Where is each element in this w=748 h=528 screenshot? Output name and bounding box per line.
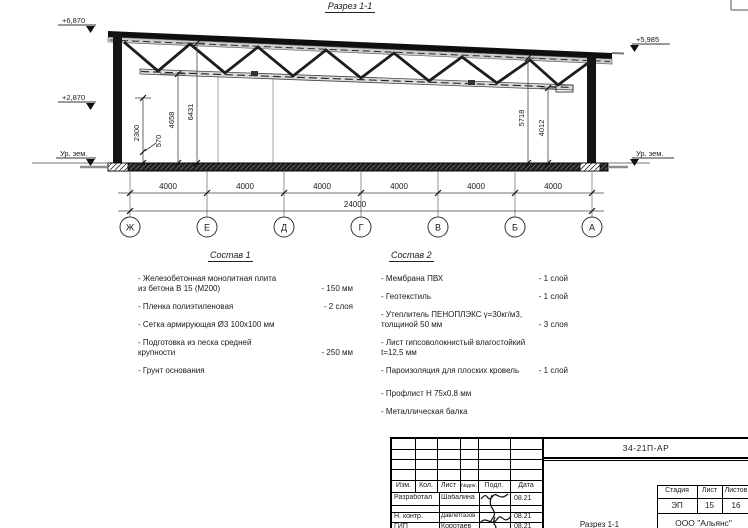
list-item: - Профлист Н 75х0.8 мм <box>381 389 568 399</box>
tb-col-izm: Изм. <box>392 482 415 489</box>
bay-dim-value: 4000 <box>236 182 254 191</box>
dim-value: 6431 <box>186 104 195 121</box>
composition-list-1: Состав 1 - Железобетонная монолитная пли… <box>138 250 353 384</box>
axis-label: Ж <box>126 223 135 233</box>
item-text: - Железобетонная монолитная плита из бет… <box>138 274 276 294</box>
axis-bubbles: Ж Е Д Г В Б А <box>120 217 602 237</box>
dimension-6431: 6431 <box>182 40 205 166</box>
column-right <box>587 56 596 165</box>
elevation-value: Ур. зем. <box>60 149 88 158</box>
list-item: - Геотекстиль- 1 слой <box>381 292 568 302</box>
bay-dim-value: 4000 <box>313 182 331 191</box>
tb-line <box>657 498 748 499</box>
interior-lines <box>218 76 273 163</box>
tb-line <box>392 505 542 506</box>
item-qty: - 1 слой <box>533 366 568 376</box>
item-text: - Металлическая балка <box>381 407 468 417</box>
item-qty: - 250 мм <box>316 348 353 358</box>
axis-label: А <box>589 223 595 233</box>
item-text: - Грунт основания <box>138 366 205 376</box>
item-text: - Пленка полиэтиленовая <box>138 302 233 312</box>
axis-label: Г <box>359 223 364 233</box>
tb-stage-value: ЭП <box>657 501 697 510</box>
list-item: - Железобетонная монолитная плита из бет… <box>138 274 353 294</box>
composition-1-title-text: Состав 1 <box>208 250 253 262</box>
item-qty: - 3 слоя <box>533 320 568 330</box>
tb-date: 08.21 <box>514 495 542 502</box>
list-item: - Грунт основания <box>138 366 353 376</box>
item-text: - Лист гипсоволокнистый влагостойкий t=1… <box>381 338 525 358</box>
list-item: - Мембрана ПВХ- 1 слой <box>381 274 568 284</box>
tb-name: Шабалина <box>441 494 479 501</box>
axis-label: Е <box>204 223 210 233</box>
tb-col-list: Лист <box>437 482 460 489</box>
item-text: - Геотекстиль <box>381 292 431 302</box>
title-block: Изм. Кол. Лист №док. Подл. Дата Разработ… <box>390 437 748 528</box>
tb-drawing-name: Разрез 1-1 <box>542 520 657 528</box>
building-section-drawing: +6,870 +2,870 Ур. зем. +5,985 Ур. зем. <box>0 0 748 245</box>
tb-col-data: Дата <box>510 482 542 489</box>
truss-bottom-chord <box>140 69 573 92</box>
tb-sheets-label: Листов <box>722 487 748 494</box>
composition-list-2: Состав 2 - Мембрана ПВХ- 1 слой - Геотек… <box>381 250 568 425</box>
tb-date: 08.21 <box>514 513 542 520</box>
item-qty: - 2 слоя <box>318 302 353 312</box>
tb-doc-code: 34-21П-АР <box>542 443 748 453</box>
composition-2-title-text: Состав 2 <box>389 250 434 262</box>
item-text: - Утеплитель ПЕНОПЛЭКС γ=30кг/м3, толщин… <box>381 310 522 330</box>
dim-value: 4012 <box>537 120 546 137</box>
elevation-mark-right-top: +5,985 <box>630 35 670 52</box>
axis-label: Д <box>281 223 287 233</box>
dim-value: 5718 <box>517 110 526 127</box>
tb-line <box>439 492 440 528</box>
tb-sheets-value: 16 <box>722 501 748 510</box>
column-left <box>113 33 122 165</box>
tb-role: ГИП <box>394 523 439 528</box>
tb-line <box>657 513 748 514</box>
list-item: - Сетка армирующая Ø3 100х100 мм <box>138 320 353 330</box>
bay-dim-value: 4000 <box>159 182 177 191</box>
item-text: - Мембрана ПВХ <box>381 274 443 284</box>
list-item: - Пленка полиэтиленовая- 2 слоя <box>138 302 353 312</box>
dim-value: 4658 <box>167 112 176 129</box>
item-text: - Пароизоляция для плоских кровель <box>381 366 519 376</box>
bay-dim-value: 4000 <box>390 182 408 191</box>
composition-1-title: Состав 1 <box>208 250 353 260</box>
list-item: - Пароизоляция для плоских кровель- 1 сл… <box>381 366 568 376</box>
tb-line <box>392 492 542 493</box>
elevation-value: +6,870 <box>62 16 85 25</box>
tb-name: Коротаев <box>441 523 479 528</box>
signatures <box>477 489 513 528</box>
bay-dim-value: 4000 <box>544 182 562 191</box>
dimension-4012: 4012 <box>537 85 556 166</box>
dim-value: 2300 <box>132 125 141 142</box>
floor-slab <box>108 163 608 171</box>
tb-role: Разработал <box>394 494 439 501</box>
sheet-frame-corner <box>731 0 748 10</box>
item-text: - Профлист Н 75х0.8 мм <box>381 389 471 399</box>
tb-col-ndok: №док. <box>460 482 478 491</box>
tb-line <box>542 460 748 461</box>
elevation-value: Ур. зем. <box>636 149 664 158</box>
elevation-mark-left-top: +6,870 <box>58 16 96 33</box>
item-qty: - 1 слой <box>533 274 568 284</box>
composition-2-title: Состав 2 <box>389 250 568 260</box>
tb-role: Н. контр. <box>394 513 439 520</box>
elevation-value: +2,870 <box>62 93 85 102</box>
axis-label: В <box>435 223 441 233</box>
tb-col-podl: Подл. <box>478 482 510 489</box>
item-qty: - 150 мм <box>316 284 353 294</box>
bay-dim-value: 4000 <box>467 182 485 191</box>
list-item: - Металлическая балка <box>381 407 568 417</box>
item-qty: - 1 слой <box>533 292 568 302</box>
axis-extension-lines <box>130 172 592 217</box>
dim-value: 570 <box>154 135 163 148</box>
tb-col-kol: Кол. <box>415 482 437 489</box>
elevation-mark-left-mid: +2,870 <box>58 93 96 110</box>
dimension-570: 570 <box>140 135 163 155</box>
tb-company: ООО "Альянс" <box>657 518 748 528</box>
dimension-2300: 2300 <box>132 95 151 166</box>
tb-line <box>657 485 748 486</box>
tb-date: 08.21 <box>514 523 542 528</box>
item-text: - Сетка армирующая Ø3 100х100 мм <box>138 320 274 330</box>
dimension-5718: 5718 <box>517 55 538 166</box>
tb-sheet-value: 15 <box>697 501 722 510</box>
axis-label: Б <box>512 223 518 233</box>
item-text: - Подготовка из песка средней крупности <box>138 338 251 358</box>
elevation-value: +5,985 <box>636 35 659 44</box>
tb-sheet-label: Лист <box>697 487 722 494</box>
total-dim-value: 24000 <box>344 200 367 209</box>
list-item: - Лист гипсоволокнистый влагостойкий t=1… <box>381 338 568 358</box>
tb-stage-label: Стадия <box>657 487 697 494</box>
drawing-sheet: Разрез 1-1 <box>0 0 748 528</box>
tb-line <box>542 457 748 459</box>
tb-name: Давлетгазов <box>441 513 479 519</box>
dimension-4658: 4658 <box>160 71 186 166</box>
list-item: - Подготовка из песка средней крупности-… <box>138 338 353 358</box>
list-item: - Утеплитель ПЕНОПЛЭКС γ=30кг/м3, толщин… <box>381 310 568 330</box>
